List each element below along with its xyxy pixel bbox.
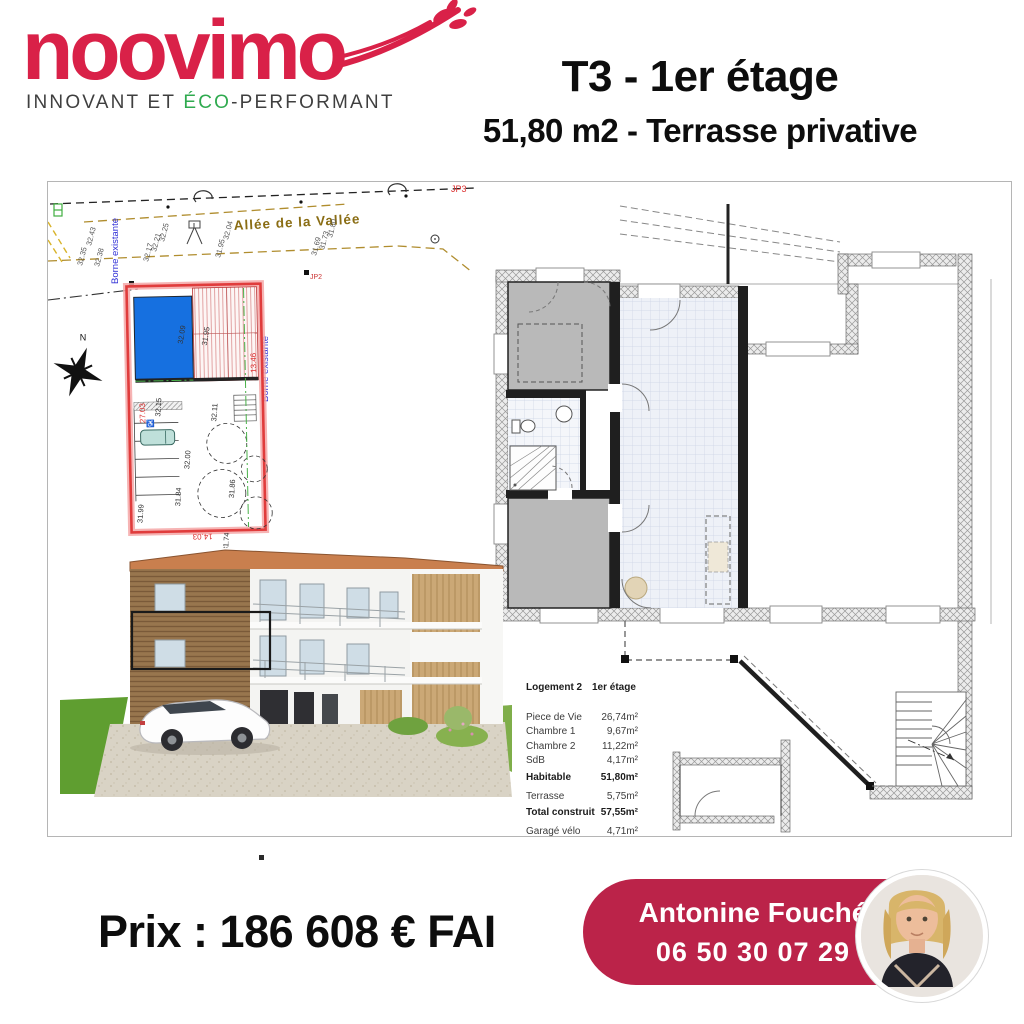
- room-area: 26,74m²: [601, 712, 638, 723]
- room-label: Habitable: [526, 772, 571, 783]
- room-label: Chambre 1: [526, 726, 575, 737]
- floor-label: 1er étage: [592, 682, 636, 693]
- room-label: Piece de Vie: [526, 712, 582, 723]
- building: [130, 550, 503, 724]
- svg-text:31.99: 31.99: [135, 504, 145, 523]
- site-plan: JP3 Allée de la Vallée 32.35 32.43 32.38…: [48, 182, 485, 548]
- svg-text:32.25: 32.25: [157, 222, 171, 242]
- svg-text:32.00: 32.00: [182, 450, 192, 469]
- room-area: 11,22m²: [602, 741, 638, 752]
- accessible-parking-icon: ♿: [146, 419, 155, 428]
- table-row: Chambre 19,67m²: [526, 725, 638, 740]
- private-terrace: [621, 621, 738, 663]
- header-block: T3 - 1er étage 51,80 m2 - Terrasse priva…: [400, 52, 1000, 150]
- north-compass-icon: N: [48, 326, 116, 406]
- borne-existante-label: Borne existante: [110, 218, 121, 284]
- agent-photo: [856, 870, 988, 1002]
- brand-tagline: INNOVANT ET ÉCO-PERFORMANT: [26, 92, 395, 114]
- svg-text:27.03: 27.03: [138, 402, 147, 423]
- stair-symbol: [234, 395, 257, 421]
- survey-arrow-icon: [388, 184, 406, 195]
- room-area: 5,75m²: [607, 791, 638, 802]
- table-row: Total construit57,55m²: [526, 806, 638, 821]
- svg-text:32.35: 32.35: [75, 246, 89, 266]
- svg-text:32.15: 32.15: [153, 398, 163, 417]
- table-row: Garagé vélo4,71m²: [526, 825, 638, 840]
- survey-arrow-icon: [194, 191, 212, 202]
- price-text: Prix : 186 608 € FAI: [98, 906, 496, 958]
- section-detail: [680, 765, 781, 816]
- tagline-eco: ÉCO: [183, 92, 231, 113]
- svg-text:32.43: 32.43: [84, 226, 98, 246]
- room-area: 51,80m²: [601, 772, 638, 783]
- balcony-projection: [620, 206, 840, 262]
- table-row: Terrasse5,75m²: [526, 789, 638, 804]
- tagline-post: -PERFORMANT: [231, 92, 395, 113]
- plan-panel: JP3 Allée de la Vallée 32.35 32.43 32.38…: [47, 181, 1012, 837]
- shower-icon: [510, 446, 556, 490]
- area-table: Logement 2 1er étage Piece de Vie26,74m²…: [526, 682, 638, 839]
- bedroom-2: [508, 498, 610, 608]
- car-symbol: [140, 429, 174, 445]
- page-title: T3 - 1er étage: [400, 52, 1000, 102]
- svg-text:14.03: 14.03: [192, 532, 213, 541]
- survey-centerline: [50, 188, 476, 204]
- svg-text:31.95: 31.95: [213, 238, 227, 258]
- survey-station-icon: [187, 221, 202, 244]
- building-render: [60, 542, 512, 800]
- table-row: Piece de Vie26,74m²: [526, 710, 638, 725]
- room-area: 57,55m²: [601, 807, 638, 818]
- room-area: 4,17m²: [607, 755, 638, 766]
- svg-text:31.86: 31.86: [227, 479, 237, 498]
- svg-text:N: N: [80, 333, 87, 343]
- table-row: SdB4,17m²: [526, 754, 638, 769]
- room-label: Garagé vélo: [526, 826, 580, 837]
- staircase: [896, 692, 966, 786]
- flyer-page: noovimo INNOVANT ET ÉCO-PERFORMANT T3 - …: [0, 0, 1024, 1024]
- agent-portrait-illustration: [861, 875, 973, 987]
- table-row: Chambre 211,22m²: [526, 739, 638, 754]
- sink-icon: [556, 406, 572, 422]
- noovimo-logo: noovimo: [22, 8, 344, 92]
- room-area: 9,67m²: [607, 726, 638, 737]
- room-label: Total construit: [526, 807, 595, 818]
- svg-text:32.04: 32.04: [221, 220, 235, 240]
- room-area: 4,71m²: [607, 826, 638, 837]
- svg-text:13.46: 13.46: [249, 352, 258, 373]
- svg-text:31.84: 31.84: [173, 487, 183, 506]
- room-label: SdB: [526, 755, 545, 766]
- room-label: Chambre 2: [526, 741, 575, 752]
- parcel: ♿ 27.03 13.46: [126, 284, 273, 548]
- svg-text:32.38: 32.38: [92, 247, 106, 267]
- tagline-pre: INNOVANT ET: [26, 92, 183, 113]
- toilet-icon: [512, 420, 535, 433]
- page-subtitle: 51,80 m2 - Terrasse privative: [400, 112, 1000, 150]
- bedroom-1: [508, 282, 610, 390]
- diagonal-wall: [740, 661, 872, 788]
- table-icon: [625, 577, 647, 599]
- room-label: Terrasse: [526, 791, 564, 802]
- lot-label: Logement 2: [526, 682, 592, 693]
- boundary-dot: [259, 855, 264, 860]
- street-name: Allée de la Vallée: [233, 211, 360, 233]
- survey-point-jp3: JP3: [451, 184, 467, 194]
- table-row: Habitable51,80m²: [526, 770, 638, 785]
- survey-point-jp2: JP2: [310, 274, 322, 281]
- area-table-header: Logement 2 1er étage: [526, 682, 638, 693]
- svg-text:32.11: 32.11: [209, 403, 219, 422]
